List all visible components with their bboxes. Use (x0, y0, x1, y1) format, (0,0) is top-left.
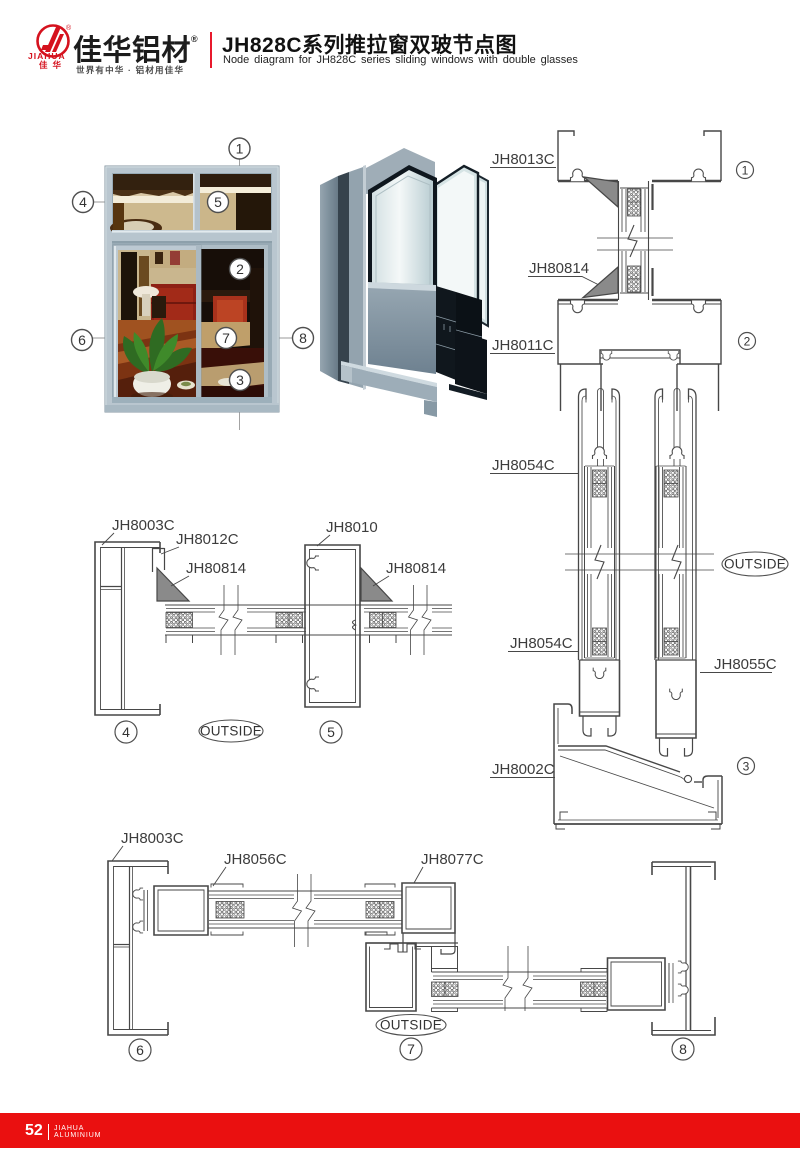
svg-text:6: 6 (78, 332, 86, 348)
svg-text:JH8010: JH8010 (326, 519, 378, 536)
svg-text:4: 4 (122, 724, 130, 740)
svg-text:7: 7 (407, 1041, 415, 1057)
svg-text:3: 3 (743, 760, 750, 774)
svg-text:6: 6 (136, 1042, 144, 1058)
svg-text:JH8002C: JH8002C (492, 761, 555, 778)
svg-text:JH8077C: JH8077C (421, 851, 484, 868)
svg-text:4: 4 (79, 194, 87, 210)
svg-text:佳华: 佳华 (39, 60, 66, 70)
svg-text:5: 5 (214, 194, 222, 210)
svg-text:JH8003C: JH8003C (121, 830, 184, 847)
svg-text:3: 3 (236, 372, 244, 388)
svg-text:8: 8 (299, 330, 307, 346)
svg-text:5: 5 (327, 724, 335, 740)
svg-text:2: 2 (744, 335, 751, 349)
svg-text:1: 1 (742, 164, 749, 178)
svg-text:JH8012C: JH8012C (176, 531, 239, 548)
svg-text:JH8011C: JH8011C (492, 337, 554, 354)
svg-text:JH80814: JH80814 (186, 560, 246, 577)
svg-text:OUTSIDE: OUTSIDE (724, 557, 786, 572)
svg-text:®: ® (66, 24, 72, 32)
svg-text:JH80814: JH80814 (529, 260, 589, 277)
svg-text:OUTSIDE: OUTSIDE (200, 724, 262, 739)
svg-text:JH8055C: JH8055C (714, 656, 777, 673)
svg-text:JH8013C: JH8013C (492, 151, 555, 168)
svg-text:1: 1 (236, 141, 244, 157)
svg-text:JH80814: JH80814 (386, 560, 446, 577)
svg-text:JH8056C: JH8056C (224, 851, 287, 868)
svg-text:2: 2 (236, 261, 244, 277)
svg-text:OUTSIDE: OUTSIDE (380, 1018, 442, 1033)
svg-text:JH8003C: JH8003C (112, 517, 175, 534)
svg-text:JH8054C: JH8054C (510, 635, 573, 652)
svg-text:8: 8 (679, 1041, 687, 1057)
svg-text:7: 7 (222, 330, 230, 346)
svg-text:JH8054C: JH8054C (492, 457, 555, 474)
